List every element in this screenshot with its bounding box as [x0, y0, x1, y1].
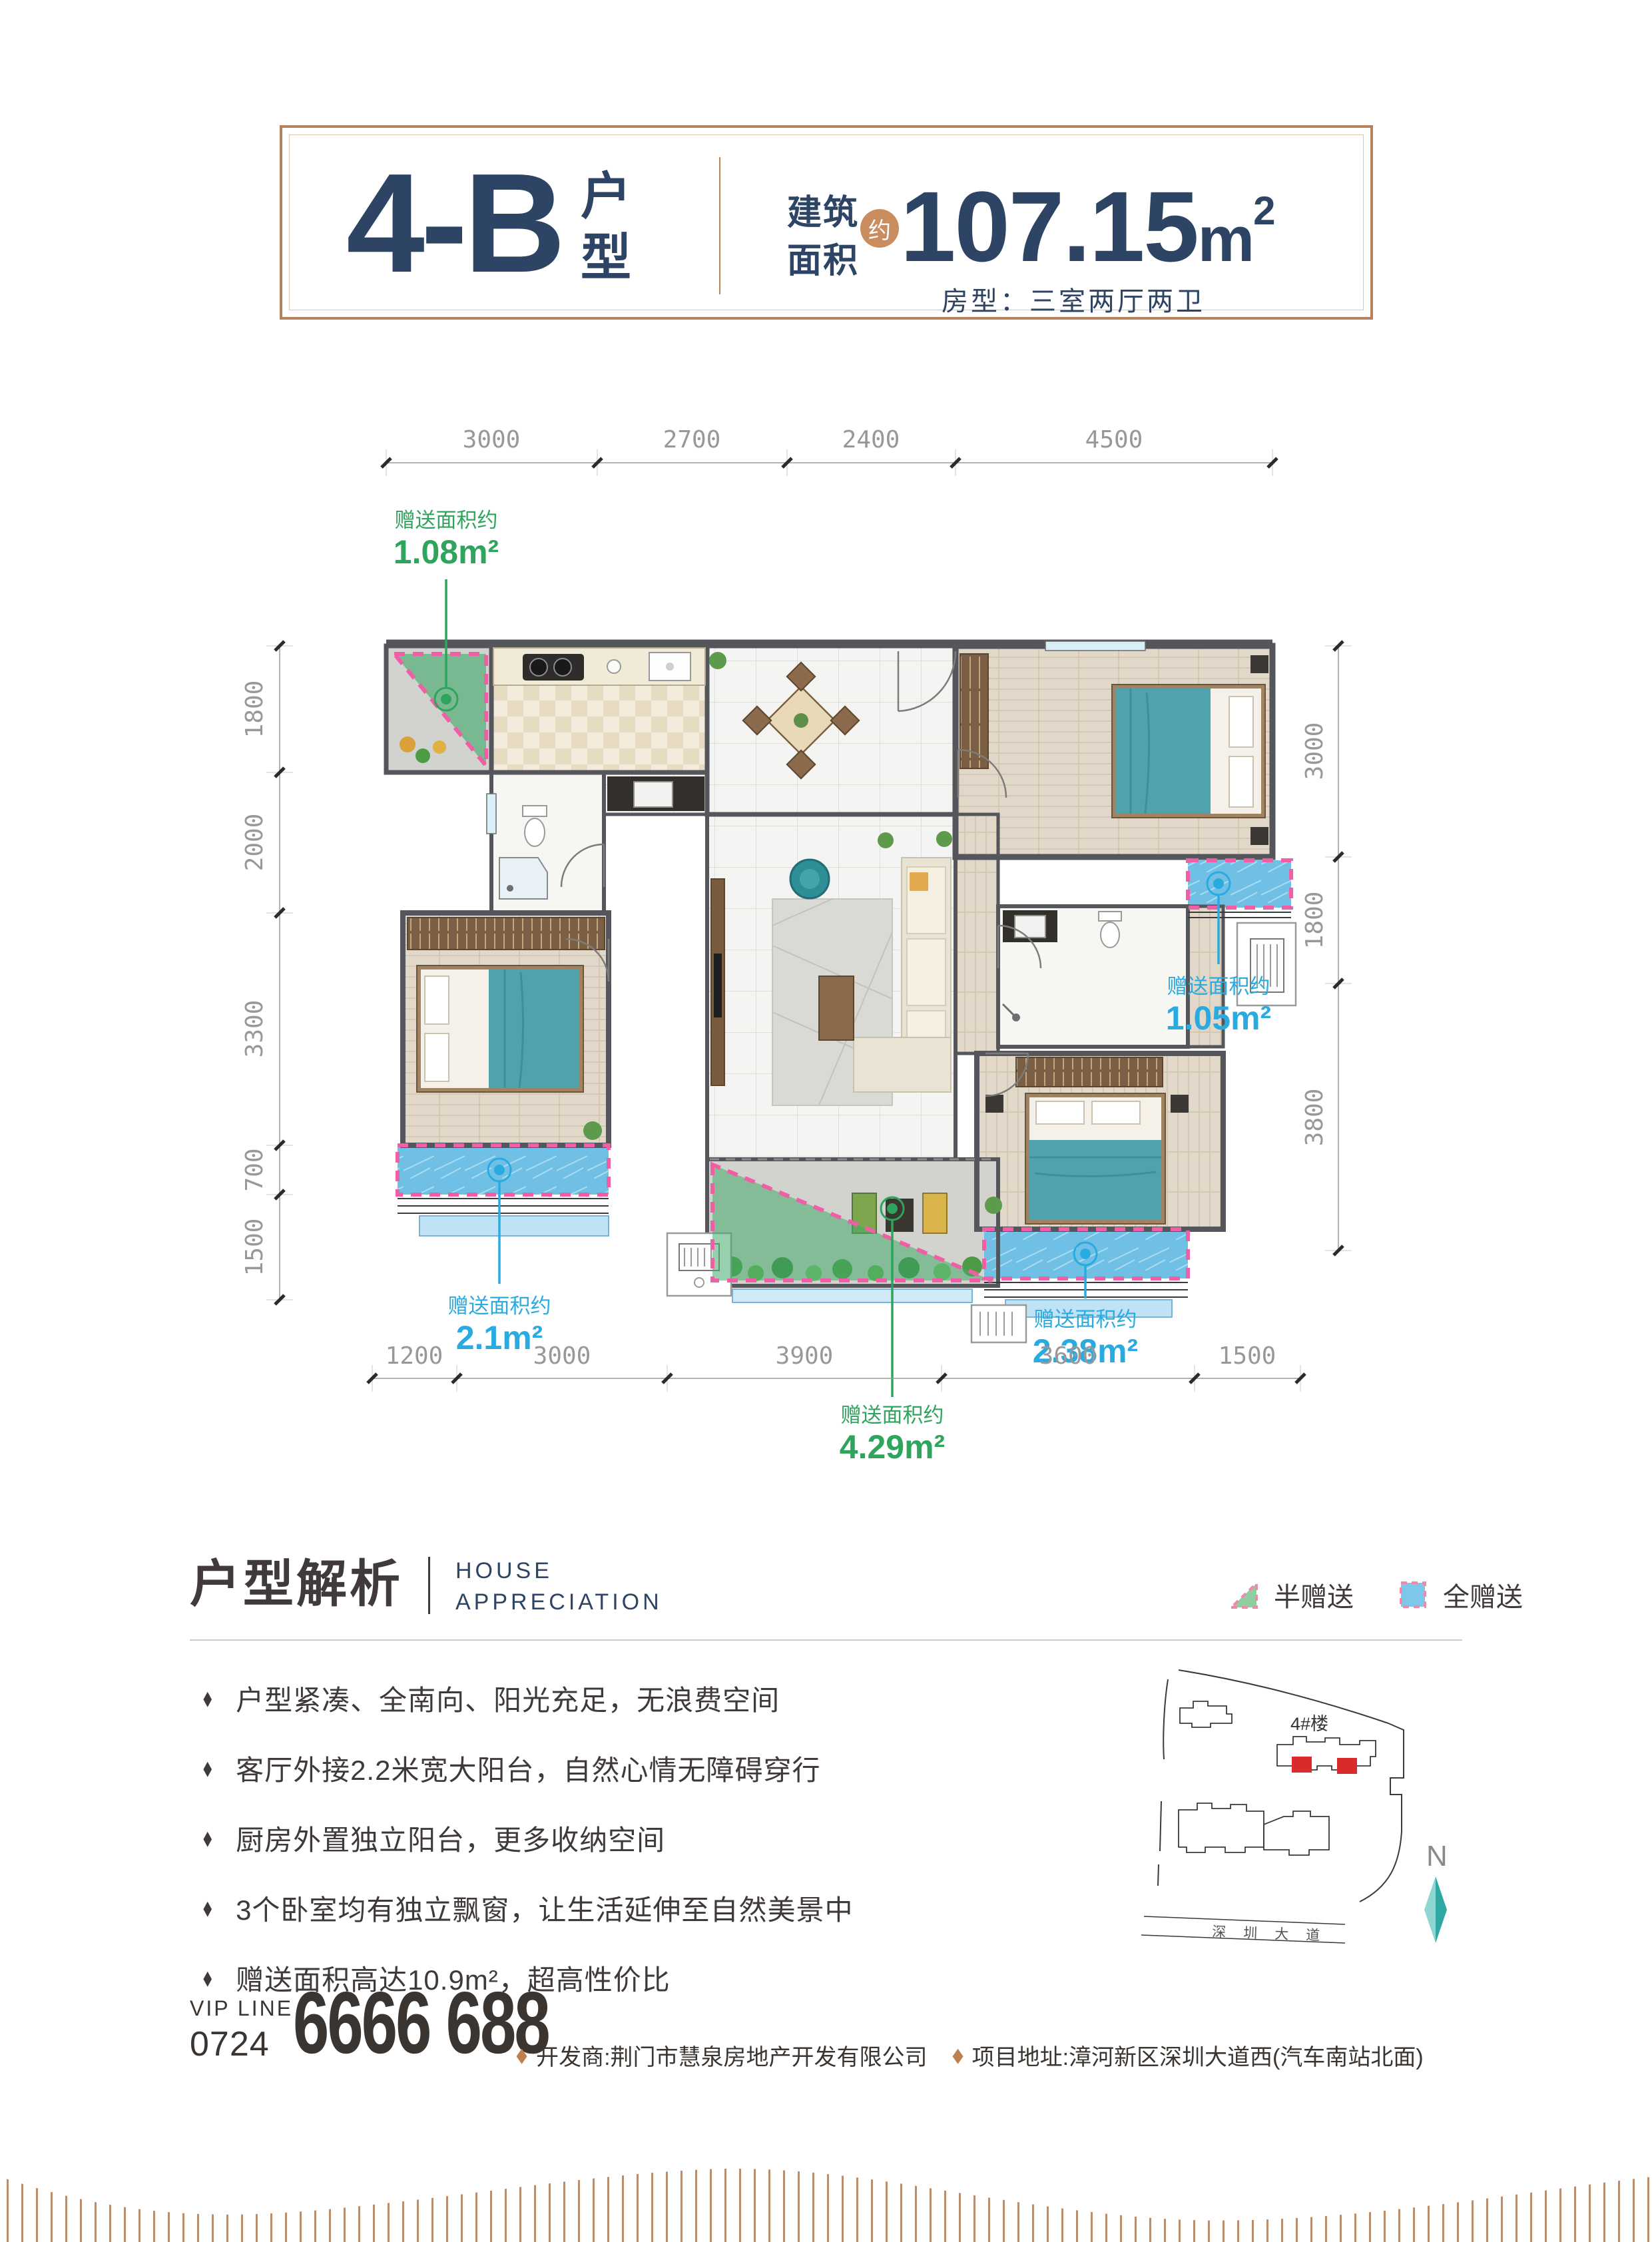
diamond-bullet-icon: ◆ [203, 1966, 212, 1990]
analysis-title-en-line1: HOUSE [455, 1555, 663, 1587]
svg-text:3000: 3000 [1301, 722, 1328, 780]
svg-text:2400: 2400 [842, 426, 900, 453]
developer-text: 开发商:荆门市慧泉房地产开发有限公司 [536, 2039, 927, 2072]
building-label: 4#楼 [1290, 1714, 1328, 1734]
compass-n-label: N [1426, 1840, 1448, 1872]
svg-text:赠送面积约: 赠送面积约 [448, 1294, 551, 1318]
area-unit: m [1198, 204, 1253, 275]
analysis-header: 户型解析 HOUSE APPRECIATION [190, 1553, 663, 1618]
area-label-bottom: 面积 [787, 237, 859, 285]
area-number: 107.15m2 [900, 154, 1274, 296]
legend-item-full: 全赠送 [1398, 1575, 1523, 1614]
area-label-top: 建筑 [787, 189, 859, 237]
full-gift-icon [1398, 1579, 1428, 1610]
dim-left: 1800 2000 3300 700 1500 [241, 641, 293, 1304]
feature-text: 户型紧凑、全南向、阳光充足，无浪费空间 [236, 1678, 780, 1719]
svg-text:1800: 1800 [241, 681, 268, 738]
compass-needle-light [1424, 1876, 1436, 1943]
svg-text:赠送面积约: 赠送面积约 [841, 1404, 944, 1427]
svg-text:1.08m²: 1.08m² [394, 533, 499, 571]
svg-text:赠送面积约: 赠送面积约 [1034, 1308, 1137, 1331]
svg-text:1.05m²: 1.05m² [1166, 999, 1271, 1037]
svg-text:1200: 1200 [386, 1342, 443, 1370]
highlight-unit-2 [1337, 1758, 1357, 1774]
approx-badge: 约 [860, 209, 899, 248]
dim-right: 3000 1800 3800 [1301, 641, 1352, 1255]
svg-text:1500: 1500 [1219, 1342, 1276, 1370]
svg-text:3000: 3000 [463, 426, 521, 453]
svg-text:3300: 3300 [241, 1000, 268, 1058]
bay-window-right-floor [1188, 860, 1291, 908]
site-buildings [1179, 1701, 1376, 1855]
svg-text:3600: 3600 [1039, 1342, 1097, 1370]
svg-text:2700: 2700 [663, 426, 721, 453]
ac-unit-bottom-right [971, 1305, 1026, 1342]
plant [709, 652, 726, 669]
developer-info: ◆ 开发商:荆门市慧泉房地产开发有限公司 [514, 2039, 928, 2072]
vip-line-label: VIP LINE [190, 1996, 293, 2021]
site-map: 4#楼 深圳大道 N [1125, 1645, 1498, 1964]
svg-text:4500: 4500 [1085, 426, 1143, 453]
svg-text:1500: 1500 [241, 1219, 268, 1276]
feature-text: 3个卧室均有独立飘窗，让生活延伸至自然美景中 [236, 1888, 853, 1928]
svg-text:3000: 3000 [533, 1342, 591, 1370]
title-divider [719, 157, 720, 294]
corridor-floor [956, 814, 998, 1053]
site-boundary [1158, 1670, 1404, 1902]
unit-name: 4-B [346, 140, 562, 306]
feature-item: ◆客厅外接2.2米宽大阳台，自然心情无障碍穿行 [200, 1748, 853, 1789]
diamond-bullet-icon: ◆ [203, 1687, 212, 1710]
compass-needle-dark [1436, 1876, 1447, 1943]
room-type: 房型：三室两厅两卫 [942, 280, 1205, 318]
diamond-icon: ◆ [516, 2044, 527, 2067]
svg-text:3800: 3800 [1301, 1089, 1328, 1147]
svg-text:2000: 2000 [241, 814, 268, 872]
analysis-title-en-line2: APPRECIATION [455, 1587, 663, 1618]
vip-phone-number: 6666 688 [293, 1972, 549, 2073]
feature-item: ◆厨房外置独立阳台，更多收纳空间 [200, 1818, 853, 1858]
svg-text:1800: 1800 [1301, 892, 1328, 950]
analysis-divider [428, 1557, 430, 1614]
legend-label-full: 全赠送 [1443, 1575, 1523, 1614]
area-value: 107.15 [900, 170, 1198, 282]
footer-info: ◆ 开发商:荆门市慧泉房地产开发有限公司 ◆ 项目地址:漳河新区深圳大道西(汽车… [514, 2039, 1424, 2072]
address-text: 项目地址:漳河新区深圳大道西(汽车南站北面) [972, 2039, 1424, 2072]
title-box: 4-B 户型 建筑 面积 约 107.15m2 房型：三室两厅两卫 [280, 125, 1373, 320]
svg-text:2.1m²: 2.1m² [456, 1319, 543, 1356]
feature-item: ◆户型紧凑、全南向、阳光充足，无浪费空间 [200, 1678, 853, 1719]
road-label: 深圳大道 [1212, 1924, 1338, 1944]
svg-text:赠送面积约: 赠送面积约 [395, 509, 498, 532]
floorplan-poster-page: 4-B 户型 建筑 面积 约 107.15m2 房型：三室两厅两卫 [0, 0, 1652, 2242]
feature-item: ◆3个卧室均有独立飘窗，让生活延伸至自然美景中 [200, 1888, 853, 1928]
kitchen-counter [493, 648, 705, 685]
svg-text:赠送面积约: 赠送面积约 [1167, 975, 1270, 998]
address-info: ◆ 项目地址:漳河新区深圳大道西(汽车南站北面) [950, 2039, 1424, 2072]
analysis-title-en: HOUSE APPRECIATION [455, 1555, 663, 1618]
dim-top: 3000 2700 2400 4500 [382, 426, 1277, 476]
gift-legend: 半赠送 全赠送 [1229, 1575, 1523, 1614]
half-gift-icon [1229, 1579, 1259, 1610]
vanity [607, 776, 704, 811]
area-labels: 建筑 面积 [787, 189, 859, 285]
svg-text:3900: 3900 [776, 1342, 834, 1370]
highlight-unit-1 [1292, 1757, 1312, 1773]
svg-text:4.29m²: 4.29m² [840, 1428, 945, 1466]
diamond-bullet-icon: ◆ [203, 1826, 212, 1850]
section-rule [190, 1639, 1462, 1641]
diamond-bullet-icon: ◆ [203, 1757, 212, 1780]
floor-plan: 赠送面积约 1.08m² 赠送面积约 1.05m² 赠送面积约 2.1m² [220, 413, 1452, 1478]
dining-floor [707, 646, 956, 814]
area-sup: 2 [1253, 188, 1274, 233]
diamond-bullet-icon: ◆ [203, 1896, 212, 1920]
vip-area-code: 0724 [190, 2024, 270, 2064]
unit-suffix: 户型 [581, 166, 637, 289]
svg-text:700: 700 [241, 1148, 268, 1191]
feature-text: 客厅外接2.2米宽大阳台，自然心情无障碍穿行 [236, 1748, 820, 1789]
legend-item-half: 半赠送 [1229, 1575, 1354, 1614]
wave-decoration [0, 2149, 1652, 2242]
legend-label-half: 半赠送 [1274, 1575, 1354, 1614]
compass: N [1424, 1840, 1448, 1943]
feature-text: 厨房外置独立阳台，更多收纳空间 [236, 1818, 665, 1858]
diamond-icon: ◆ [952, 2044, 963, 2067]
analysis-title-cn: 户型解析 [190, 1553, 403, 1617]
road: 深圳大道 [1141, 1916, 1345, 1944]
